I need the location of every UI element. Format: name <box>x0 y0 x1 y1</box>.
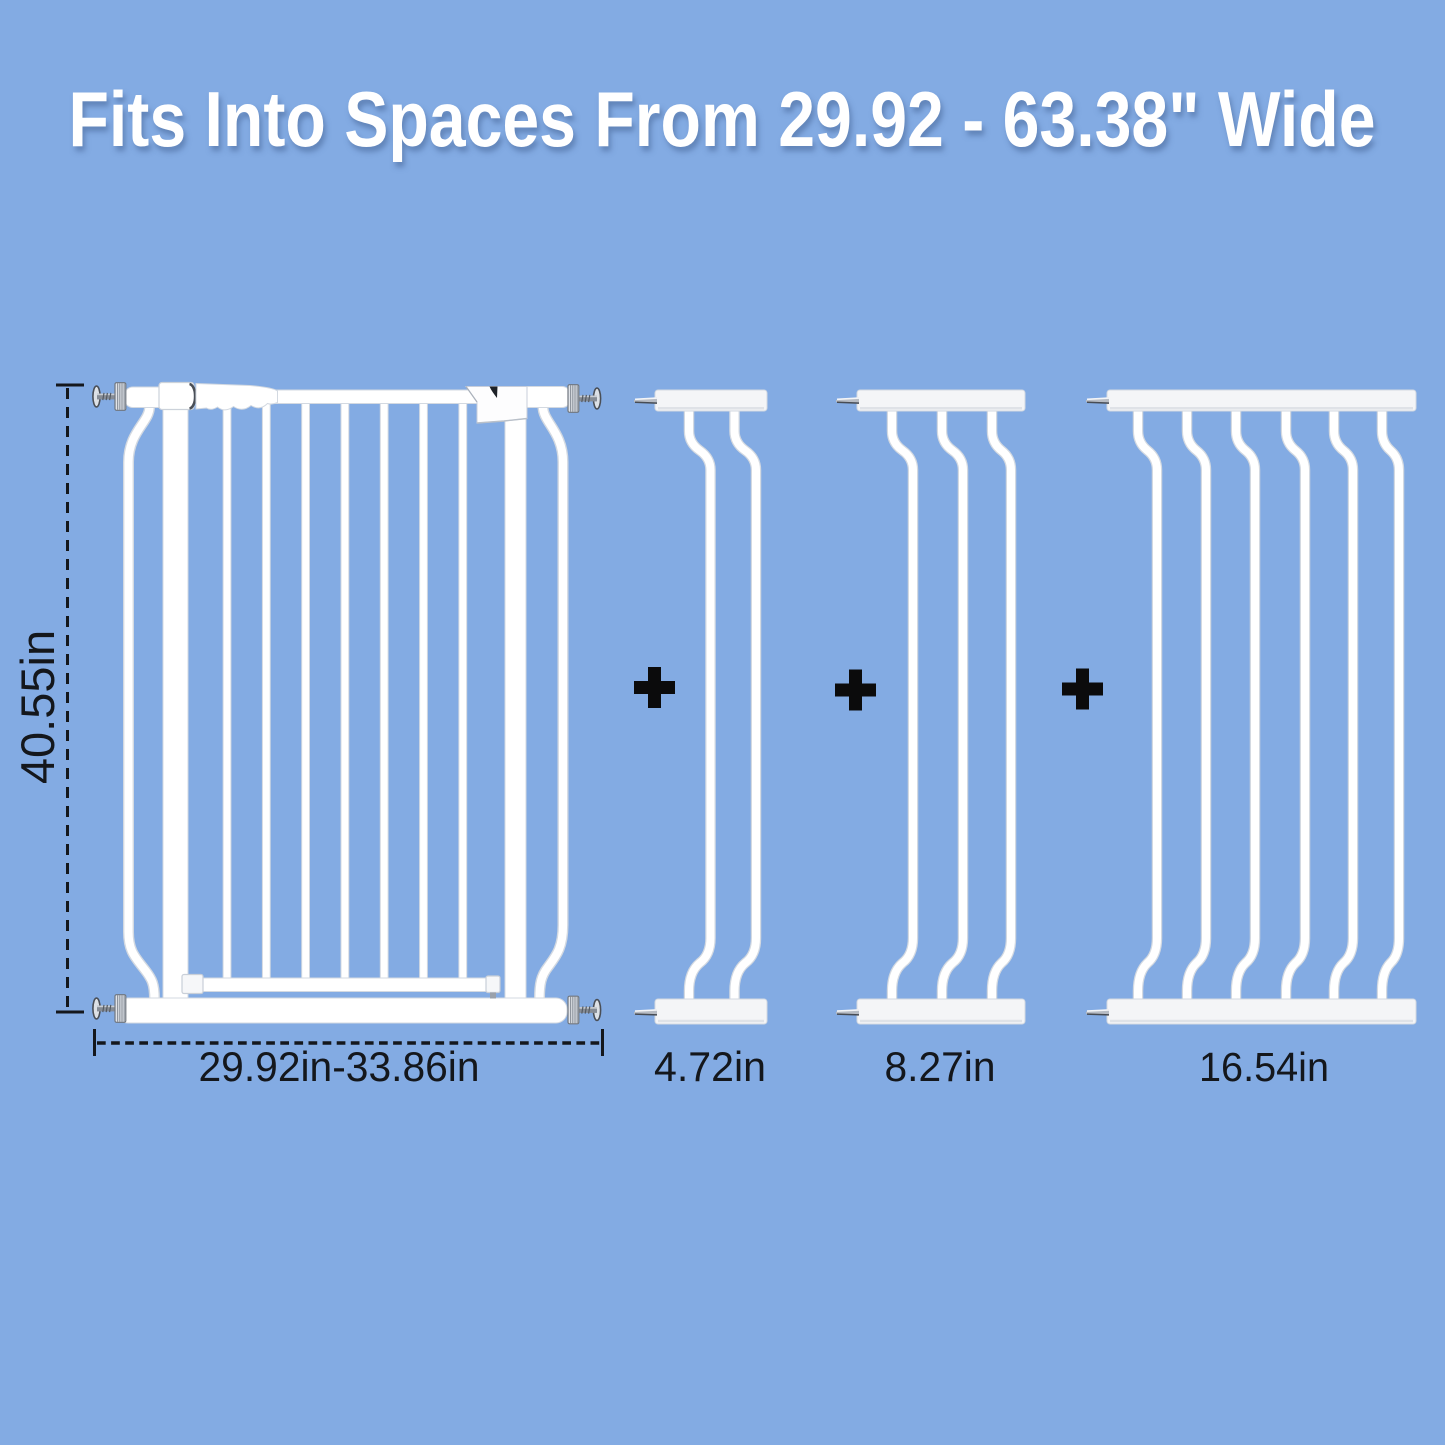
svg-text:16.54in: 16.54in <box>1199 1044 1329 1090</box>
svg-text:8.27in: 8.27in <box>885 1043 996 1090</box>
svg-text:Fits Into Spaces From 29.92 -: Fits Into Spaces From 29.92 - 63.38" Wid… <box>69 75 1376 163</box>
svg-text:40.55in: 40.55in <box>11 630 64 784</box>
svg-text:4.72in: 4.72in <box>654 1043 766 1090</box>
svg-text:29.92in-33.86in: 29.92in-33.86in <box>199 1043 480 1090</box>
